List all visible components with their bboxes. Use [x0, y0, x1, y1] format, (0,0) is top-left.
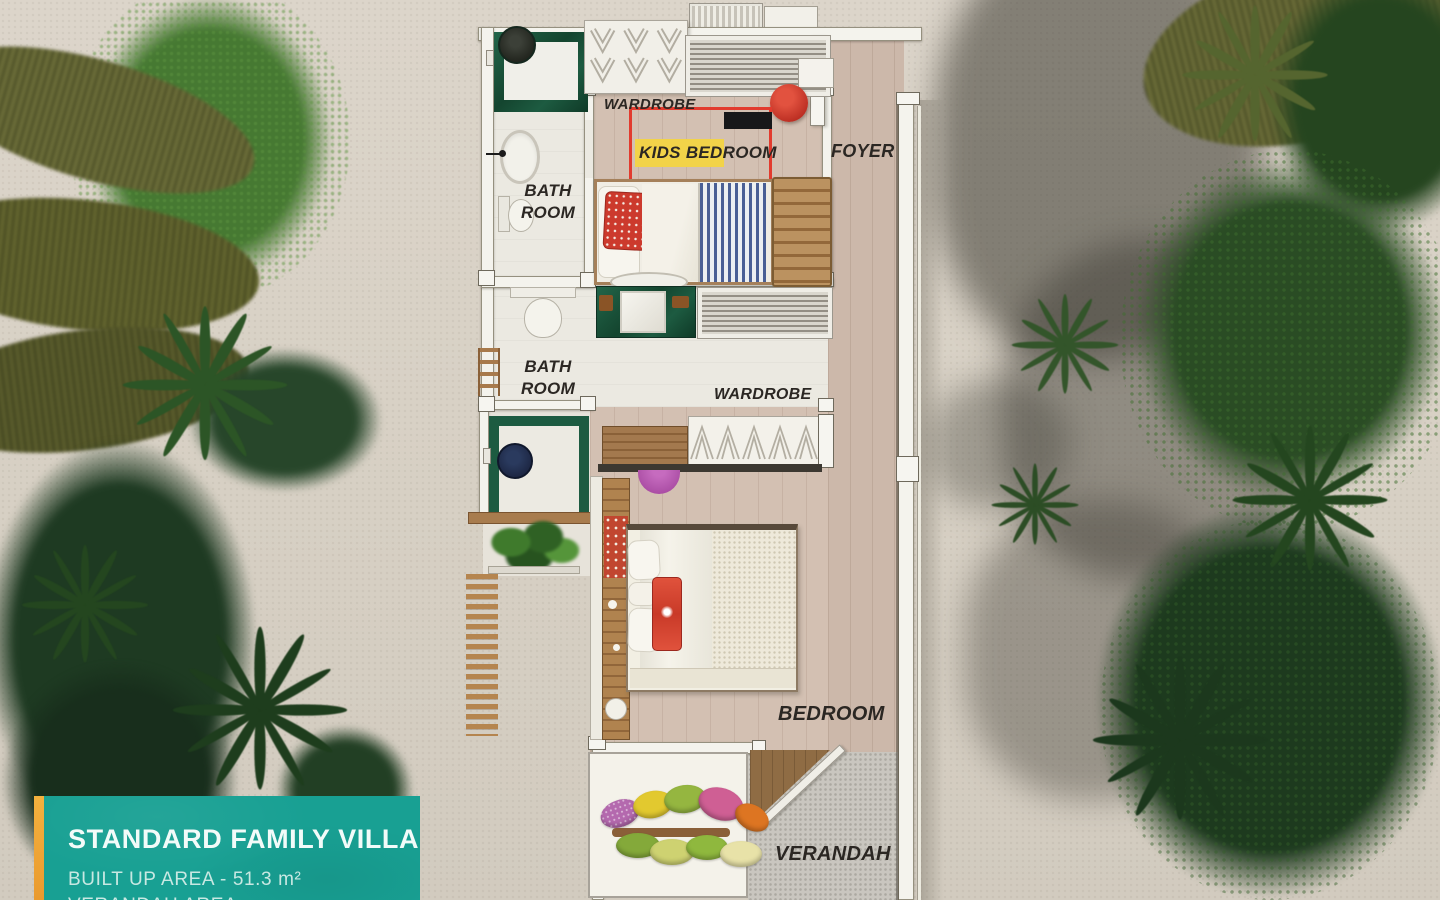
cushion-cream	[720, 841, 762, 867]
planter-lip	[488, 566, 580, 574]
wall-pillar	[896, 92, 920, 105]
faucet-icon	[483, 448, 491, 464]
bed-duvet-texture	[712, 530, 796, 688]
wardrobe-unit-middle	[688, 416, 820, 466]
vanity-stool	[599, 295, 613, 311]
wall-step	[896, 456, 919, 482]
palm-crown-icon	[120, 300, 290, 470]
wall-pillar	[478, 396, 495, 412]
palm-crown-icon	[170, 620, 350, 800]
luggage-bench-middle	[698, 288, 832, 338]
palm-crown-icon	[1010, 290, 1120, 400]
foyer-label: FOYER	[831, 141, 895, 162]
kids-sofa	[772, 177, 832, 287]
villa-title: STANDARD FAMILY VILLA	[68, 824, 419, 855]
floorplan-scene: KIDS BEDROOM BATH ROOM BATH ROOM WARDROB…	[0, 0, 1440, 900]
verandah-label: VERANDAH	[775, 843, 891, 866]
wall-pillar	[818, 398, 834, 412]
bed-pillow	[627, 539, 661, 581]
bed-foot-fold	[630, 668, 796, 688]
kids-duvet	[642, 184, 700, 281]
flower-dot	[608, 600, 617, 609]
decor-bowl	[605, 698, 627, 720]
faucet-icon	[499, 150, 506, 157]
wall-inner-edge	[896, 100, 899, 900]
wardrobe-unit-top	[584, 20, 688, 94]
flower-panel	[604, 516, 628, 578]
toilet-icon	[524, 298, 562, 338]
bedroom-console	[602, 426, 688, 466]
bathroom-top-label: BATH ROOM	[510, 180, 586, 225]
runner-flower	[661, 606, 673, 618]
palm-crown-icon	[990, 460, 1080, 550]
kids-striped-blanket	[698, 183, 766, 282]
bedroom-label: BEDROOM	[778, 703, 885, 726]
red-pouf	[770, 84, 808, 122]
kids-bedroom-label: KIDS BEDROOM	[639, 143, 777, 163]
bathtub-basin-icon	[498, 26, 536, 64]
door-gap	[585, 120, 593, 178]
villa-shadow	[920, 100, 944, 900]
built-up-area-line: BUILT UP AREA - 51.3 m²	[68, 869, 301, 891]
vanity-stool	[672, 296, 689, 308]
outdoor-tub-icon	[497, 443, 533, 479]
wall-outdoor-top	[481, 400, 594, 410]
flower-dot	[613, 644, 620, 651]
vanity-basin	[620, 291, 666, 333]
palm-crown-icon	[1230, 420, 1390, 580]
side-table	[798, 58, 834, 88]
towel-ladder	[478, 348, 500, 396]
palm-crown-icon	[20, 540, 150, 670]
palm-crown-icon	[1090, 650, 1270, 830]
deck-edge-line	[917, 106, 921, 900]
tv-unit	[724, 112, 772, 129]
hanger-icon	[689, 417, 819, 465]
partial-bottom-line: VERANDAH AREA	[68, 895, 237, 900]
palm-crown-icon	[1180, 0, 1330, 150]
wardrobe-middle-label: WARDROBE	[714, 386, 812, 404]
wall-pillar	[478, 270, 495, 286]
hanger-icon	[585, 21, 687, 93]
wall-right	[898, 100, 914, 900]
wardrobe-end-pillar	[818, 414, 834, 468]
wardrobe-top-label: WARDROBE	[604, 96, 696, 113]
faucet-icon	[486, 50, 494, 66]
panel-accent-stripe	[34, 796, 44, 900]
wardrobe-base-bar	[598, 464, 822, 472]
planter-bush	[488, 518, 580, 572]
slatted-fence	[466, 574, 498, 736]
round-mirror-icon	[500, 130, 540, 184]
bathroom-middle-label: BATH ROOM	[510, 356, 586, 401]
toilet-cistern	[510, 287, 576, 298]
